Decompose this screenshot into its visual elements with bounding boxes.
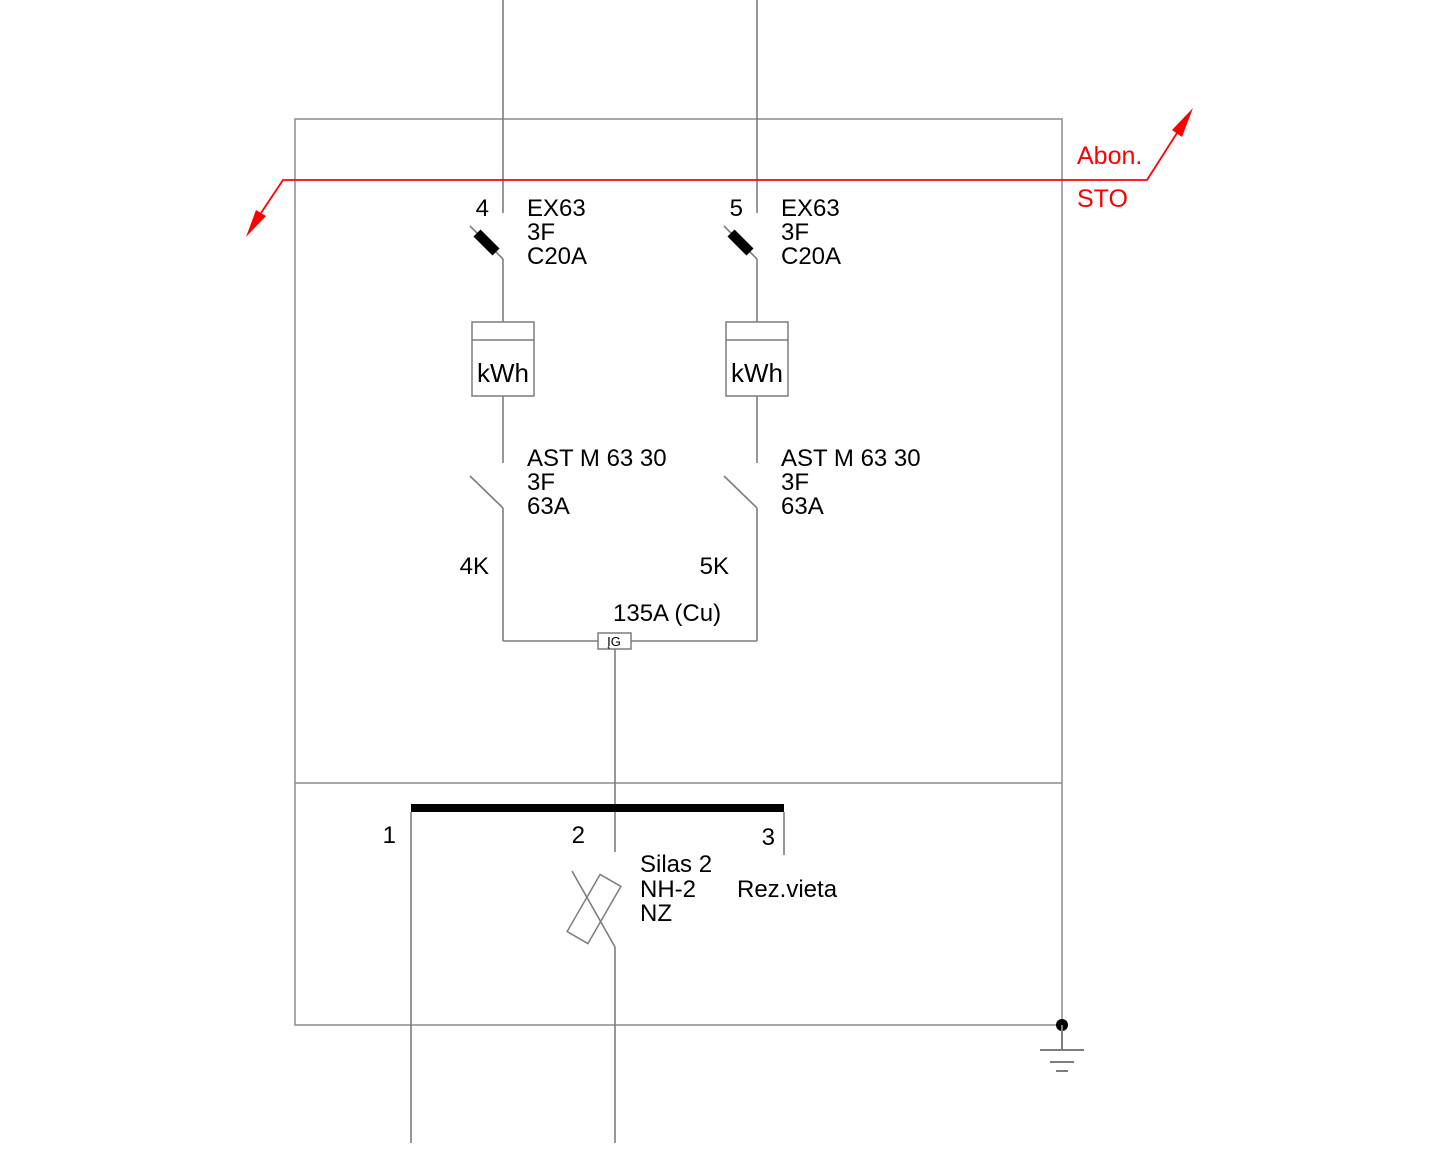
cable-tag-4k: 4K — [460, 553, 489, 580]
breaker-4-nameplate: EX63 3F C20A — [527, 195, 587, 270]
tap-3-number: 3 — [762, 824, 775, 851]
tap-2-number: 2 — [572, 822, 585, 849]
feeder-above-label: Abon. — [1077, 142, 1142, 170]
switch-4-nameplate: AST M 63 30 3F 63A — [527, 445, 667, 520]
breaker-5-symbol — [724, 226, 757, 259]
fuse-nameplate: Silas 2 NH-2 NZ — [640, 851, 712, 927]
fuse-size: NZ — [640, 900, 672, 927]
switch-5-rating: 63A — [781, 493, 824, 520]
junction-section: 135A (Cu) ĮG — [503, 600, 757, 852]
cable-tag-5k: 5K — [700, 553, 729, 580]
breaker-5-nameplate: EX63 3F C20A — [781, 195, 841, 270]
ig-device-label: ĮG — [607, 634, 621, 649]
busbar — [411, 804, 784, 812]
busbar-section: 1 2 3 Rez.vieta Silas 2 NH-2 NZ — [383, 804, 838, 1143]
switch-5-blade — [724, 476, 757, 508]
branch-4-number: 4 — [476, 195, 489, 222]
breaker-4-rating: C20A — [527, 243, 587, 270]
switch-5-phases: 3F — [781, 469, 809, 496]
breaker-5-rating: C20A — [781, 243, 841, 270]
fuse-name: Silas 2 — [640, 851, 712, 878]
feeder-annotation: Abon. STO — [246, 108, 1193, 237]
reserve-slot-note: Rez.vieta — [737, 876, 838, 903]
meter-5-label: kWh — [731, 358, 783, 388]
tap-1-number: 1 — [383, 822, 396, 849]
breaker-5-contact — [731, 233, 750, 252]
switch-5-nameplate: AST M 63 30 3F 63A — [781, 445, 921, 520]
breaker-4-model: EX63 — [527, 195, 586, 222]
breaker-5-model: EX63 — [781, 195, 840, 222]
junction-rating-label: 135A (Cu) — [613, 600, 721, 627]
feeder-below-label: STO — [1077, 185, 1128, 213]
switch-4-blade — [470, 476, 503, 508]
breaker-4-contact — [477, 233, 496, 252]
meter-4-label: kWh — [477, 358, 529, 388]
energy-meter-5-symbol: kWh — [726, 322, 788, 396]
switch-4-rating: 63A — [527, 493, 570, 520]
switch-4-phases: 3F — [527, 469, 555, 496]
feeder-branch-5: kWh 5 EX63 3F C20A AST M 63 30 3F 63A 5K — [700, 0, 921, 641]
feeder-arrowhead-left — [246, 210, 266, 237]
fuse-type: NH-2 — [640, 876, 696, 903]
switch-4-model: AST M 63 30 — [527, 445, 667, 472]
feeder-arrowhead-right — [1172, 108, 1193, 137]
switch-5-model: AST M 63 30 — [781, 445, 921, 472]
energy-meter-4-symbol: kWh — [472, 322, 534, 396]
fuse-switch-symbol — [567, 871, 621, 1143]
feeder-annotation-line — [261, 133, 1177, 213]
breaker-4-phases: 3F — [527, 219, 555, 246]
earthing-symbol — [1040, 1019, 1084, 1071]
branch-5-number: 5 — [730, 195, 743, 222]
breaker-5-phases: 3F — [781, 219, 809, 246]
feeder-branch-4: kWh 4 EX63 3F C20A AST M 63 30 3F 63A 4K — [460, 0, 667, 641]
breaker-4-symbol — [470, 226, 503, 259]
single-line-diagram: kWh 4 EX63 3F C20A AST M 63 30 3F 63A 4K… — [0, 0, 1440, 1152]
